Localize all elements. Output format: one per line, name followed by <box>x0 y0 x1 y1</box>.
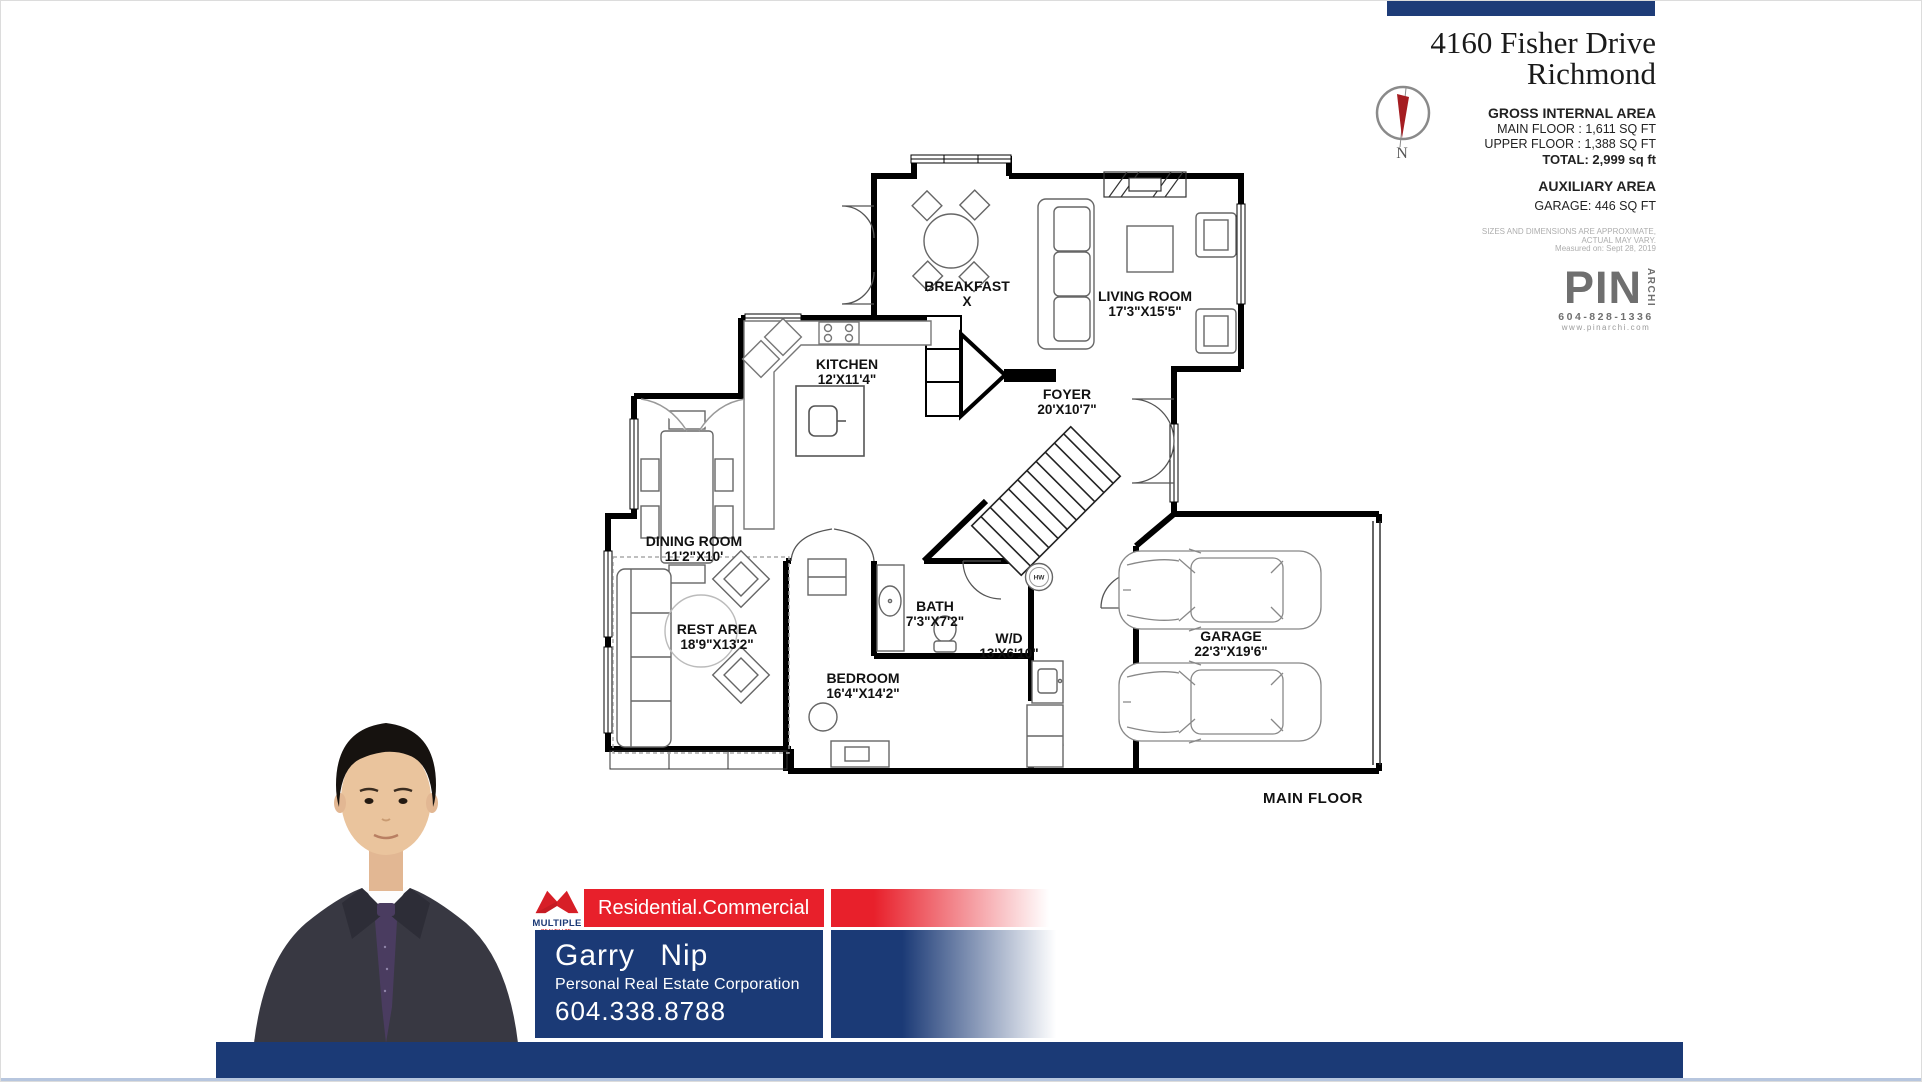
address-line1: 4160 Fisher Drive <box>1430 27 1656 58</box>
agent-photo <box>236 707 536 1043</box>
upper-floor-area: UPPER FLOOR : 1,388 SQ FT <box>1482 137 1656 152</box>
floor-plan: HW BREAKFAST X LIVING ROOM 17'3"X15'5" K… <box>481 121 1401 811</box>
room-dims-garage: 22'3"X19'6" <box>1194 644 1267 659</box>
breakfast-table <box>912 190 989 291</box>
address-line2: Richmond <box>1430 58 1656 89</box>
room-dims-kitchen: 12'X11'4" <box>818 372 877 387</box>
bottom-edge-strip <box>1 1078 1922 1082</box>
auxiliary-area-title: AUXILIARY AREA <box>1482 178 1656 195</box>
foyer-wall-chunk <box>1004 369 1056 382</box>
room-dims-laundry: 13'X6'10" <box>979 646 1038 661</box>
agent-name: Garry Nip <box>555 938 823 974</box>
bottom-accent-bar <box>216 1042 1683 1078</box>
blue-gradient-bar <box>831 930 1068 1038</box>
measurer-phone: 604-828-1336 <box>1556 311 1656 323</box>
kitchen-island <box>796 386 864 456</box>
deck-steps <box>610 751 787 769</box>
room-label-foyer: FOYER <box>1043 386 1091 402</box>
garage-door <box>1373 521 1380 765</box>
main-floor-area: MAIN FLOOR : 1,611 SQ FT <box>1482 122 1656 137</box>
gross-area-title: GROSS INTERNAL AREA <box>1482 105 1656 122</box>
tagline-banner: Residential.Commercial <box>584 889 824 927</box>
red-gradient-bar <box>831 889 1068 927</box>
area-summary: GROSS INTERNAL AREA MAIN FLOOR : 1,611 S… <box>1482 105 1656 254</box>
disclaimer-line3: Measured on: Sept 28, 2019 <box>1482 245 1656 254</box>
garage-area: GARAGE: 446 SQ FT <box>1482 199 1656 214</box>
room-label-kitchen: KITCHEN <box>816 356 878 372</box>
room-label-rest-area: REST AREA <box>677 621 757 637</box>
room-label-bath: BATH <box>916 598 954 614</box>
room-dims-rest-area: 18'9"X13'2" <box>680 637 753 652</box>
room-dims-dining-room: 11'2"X10' <box>665 549 724 564</box>
room-dims-breakfast: X <box>962 294 971 309</box>
measurer-logo: PIN ARCHI 604-828-1336 www.pinarchi.com <box>1556 267 1656 332</box>
agent-info-box: Garry Nip Personal Real Estate Corporati… <box>535 930 823 1038</box>
room-dims-foyer: 20'X10'7" <box>1037 402 1096 417</box>
room-dims-bath: 7'3"X7'2" <box>906 614 964 629</box>
agent-portrait-figure <box>254 723 518 1043</box>
agent-title: Personal Real Estate Corporation <box>555 974 823 996</box>
top-accent-bar <box>1387 1 1655 16</box>
living-room-sofa <box>1038 199 1094 349</box>
room-dims-bedroom: 16'4"X14'2" <box>826 686 899 701</box>
room-label-garage: GARAGE <box>1200 628 1261 644</box>
page-title: 4160 Fisher Drive Richmond <box>1430 27 1656 89</box>
hw-label: HW <box>1034 575 1046 582</box>
room-label-bedroom: BEDROOM <box>826 670 899 686</box>
measurer-website: www.pinarchi.com <box>1556 323 1656 332</box>
room-label-dining-room: DINING ROOM <box>646 533 742 549</box>
room-dims-living-room: 17'3"X15'5" <box>1108 304 1181 319</box>
garage-car-2 <box>1119 661 1321 743</box>
room-label-breakfast: BREAKFAST <box>924 278 1010 294</box>
multiple-m-icon <box>533 889 581 914</box>
room-label-laundry: W/D <box>995 630 1022 646</box>
pin-logo-text: PIN <box>1564 267 1642 309</box>
hot-water-tank: HW <box>1026 564 1053 591</box>
pin-logo-archi: ARCHI <box>1644 267 1656 309</box>
total-area: TOTAL: 2,999 sq ft <box>1482 152 1656 168</box>
stairs <box>972 427 1120 575</box>
brokerage-logo: MULTIPLE REALTY LTD. <box>532 889 582 934</box>
laundry-fixtures <box>1027 661 1063 767</box>
coffee-table <box>1127 226 1173 272</box>
room-label-living-room: LIVING ROOM <box>1098 288 1192 304</box>
brokerage-name: MULTIPLE <box>532 919 582 928</box>
living-armchairs <box>1196 213 1236 353</box>
floor-name-label: MAIN FLOOR <box>1263 790 1363 807</box>
agent-phone: 604.338.8788 <box>555 996 823 1026</box>
foyer-closet <box>926 316 1005 416</box>
flyer-page: 4160 Fisher Drive Richmond N GROSS INTER… <box>0 0 1922 1082</box>
garage-car-1 <box>1119 549 1321 631</box>
